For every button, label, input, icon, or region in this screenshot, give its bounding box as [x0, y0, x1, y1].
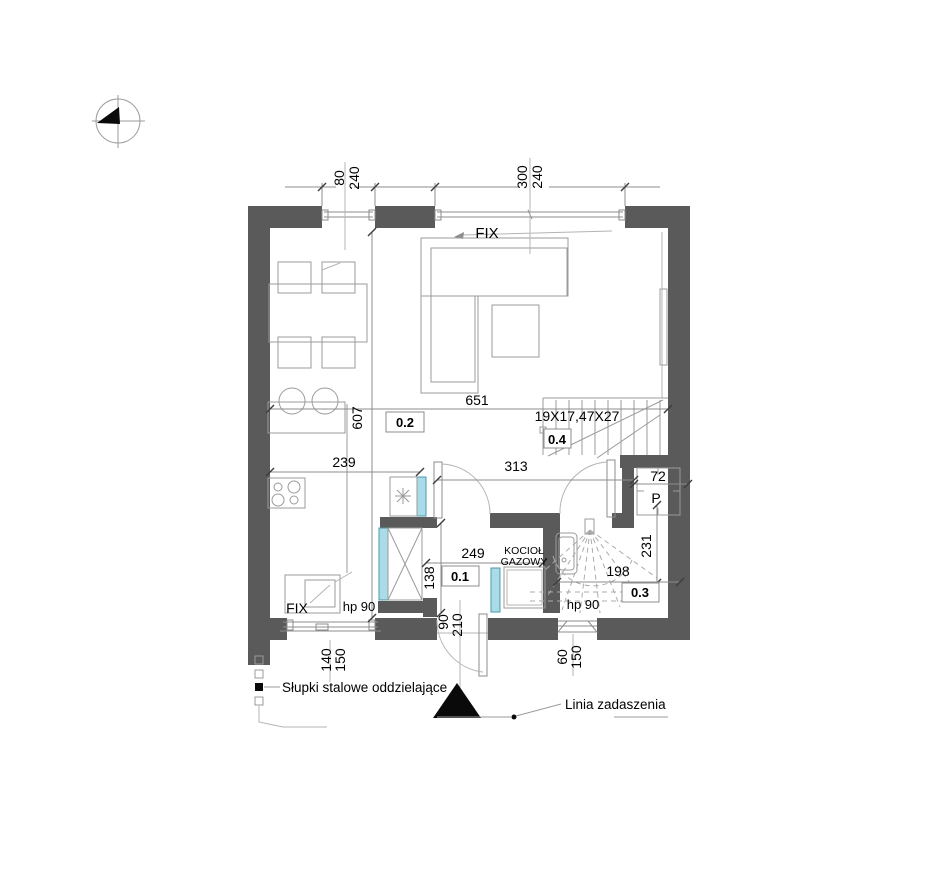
gas-boiler — [504, 567, 545, 608]
chair — [278, 262, 311, 293]
chair — [322, 262, 355, 293]
dim-window-top-right-height: 240 — [529, 165, 545, 189]
staircase-upper — [540, 398, 668, 458]
interior-door-bath — [560, 460, 615, 517]
room-number-bath: 0.3 — [631, 585, 649, 600]
label-boiler-line2: GAZOWY — [501, 556, 548, 568]
label-sill-right: hp 90 — [567, 597, 600, 612]
window-top-left — [322, 210, 375, 220]
dim-hall: 313 — [504, 458, 528, 474]
floor-plan-canvas: 80 240 300 240 FIX 651 607 0.2 239 313 1… — [0, 0, 940, 892]
label-sill-left: hp 90 — [343, 599, 376, 614]
sink-bowl — [279, 388, 305, 414]
boiler-room-door-leaf — [491, 568, 500, 612]
dining-set — [269, 262, 367, 368]
wardrobe-door-leaf — [379, 528, 388, 600]
radiator — [660, 289, 667, 365]
dim-window-top-right-width: 300 — [514, 165, 530, 189]
room-number-stairs: 0.4 — [548, 432, 567, 447]
hall-closets — [388, 477, 422, 600]
dim-bath-width: 198 — [606, 563, 630, 579]
dim-window-bl-height: 150 — [332, 648, 348, 672]
room-number-living: 0.2 — [396, 415, 414, 430]
dim-window-top-left-height: 240 — [346, 166, 362, 190]
north-compass-icon — [92, 95, 145, 148]
label-washer: P — [651, 490, 660, 506]
annotation-steel-posts: Słupki stalowe oddzielające — [282, 680, 447, 695]
dim-niche: 72 — [650, 468, 666, 484]
dim-room-width: 651 — [465, 392, 489, 408]
dim-window-top-left-width: 80 — [331, 170, 347, 186]
dim-window-br-height: 150 — [568, 645, 584, 669]
kitchen-sink-counter — [268, 402, 345, 433]
kitchen — [268, 388, 352, 613]
north-needle — [97, 107, 120, 124]
closet-door-leaf — [417, 477, 426, 516]
dim-entry-door-height: 210 — [449, 613, 465, 637]
label-stair-spec: 19X17,47X27 — [535, 408, 620, 424]
dim-kitchen: 239 — [332, 454, 356, 470]
window-bottom-right — [558, 621, 597, 632]
dim-room-height: 607 — [349, 406, 365, 430]
dim-bath-height: 231 — [638, 534, 654, 558]
corner-pier — [248, 640, 270, 665]
annotation-canopy-line: Linia zadaszenia — [565, 697, 666, 712]
coffee-table — [492, 305, 539, 357]
dim-vestibule-height: 138 — [421, 566, 437, 590]
label-fix-bottom-window: FIX — [286, 600, 308, 616]
dim-vestibule-width: 249 — [461, 545, 485, 561]
window-bottom-left-fix — [280, 620, 381, 631]
sink-bowl — [312, 388, 338, 414]
label-fix-top-window: FIX — [475, 225, 498, 242]
room-number-hall: 0.1 — [451, 569, 469, 584]
sofa — [421, 238, 568, 296]
fan-asterisk-icon — [395, 488, 411, 504]
floor-plan-page: 80 240 300 240 FIX 651 607 0.2 239 313 1… — [0, 0, 940, 892]
living-room-furniture — [421, 232, 667, 398]
interior-door-hall — [434, 462, 490, 518]
